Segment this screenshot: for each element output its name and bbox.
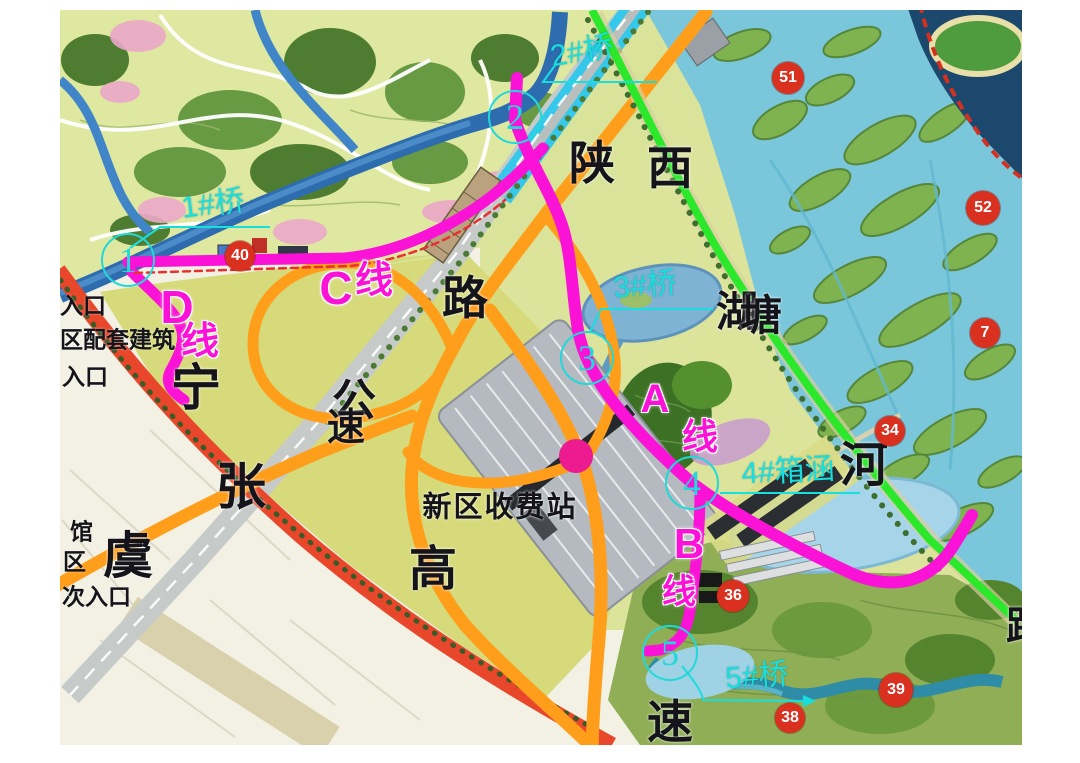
page-margin-right	[1022, 0, 1080, 763]
map-page: 陕西路公速高速宁张虞湖塘河新区收费站路入口区配套建筑入口馆区次入口C线D线A线B…	[0, 0, 1080, 763]
page-margin-bottom	[0, 745, 1080, 763]
page-margin-left	[0, 0, 60, 763]
page-margin-top	[0, 0, 1080, 10]
map-canvas	[0, 0, 1080, 763]
